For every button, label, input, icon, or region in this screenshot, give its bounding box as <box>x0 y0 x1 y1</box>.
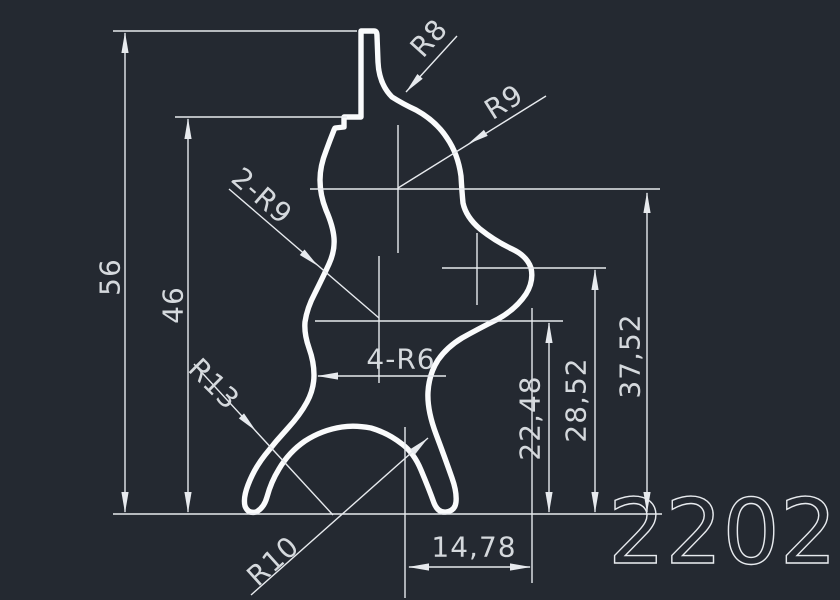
arrowhead <box>317 372 338 379</box>
extension-lines <box>113 31 662 598</box>
dimension-28-52: 28,52 <box>560 269 599 513</box>
dim-56-label: 56 <box>94 258 127 296</box>
arrowhead <box>239 413 259 433</box>
arrowhead <box>408 563 429 570</box>
dim-14-78-label: 14,78 <box>431 531 516 564</box>
dimension-37-52: 37,52 <box>614 192 651 513</box>
dimension-46: 46 <box>157 118 192 513</box>
leader-r10: R10 <box>240 435 430 595</box>
part-number-text: 2202 <box>608 480 837 585</box>
cad-viewport: 56 46 22,48 28,52 37,52 14,78 R8 <box>0 0 840 600</box>
radius-r9-label: R9 <box>479 78 530 127</box>
leader-4-r6: 4-R6 <box>317 343 446 380</box>
radius-r13-label: R13 <box>182 352 246 416</box>
dimension-22-48: 22,48 <box>514 322 553 513</box>
arrowhead <box>121 32 128 53</box>
leader-r13: R13 <box>182 352 333 515</box>
dim-28-52-label: 28,52 <box>560 357 593 442</box>
dimension-56: 56 <box>94 32 129 513</box>
arrowhead <box>591 492 598 513</box>
leader-r8: R8 <box>403 12 457 94</box>
arrowhead <box>121 492 128 513</box>
arrowhead <box>591 269 598 290</box>
dim-46-label: 46 <box>157 286 190 324</box>
arrowhead <box>545 492 552 513</box>
dim-37-52-label: 37,52 <box>614 313 647 398</box>
arrowhead <box>184 492 191 513</box>
leader-r9: R9 <box>398 78 546 188</box>
dimension-14-78: 14,78 <box>408 531 531 571</box>
radius-4-r6-label: 4-R6 <box>366 343 435 376</box>
radius-r10-label: R10 <box>240 529 305 592</box>
arrowhead <box>510 563 531 570</box>
arrowhead <box>184 118 191 139</box>
arrowhead <box>545 322 552 343</box>
dim-22-48-label: 22,48 <box>514 375 547 460</box>
radius-r8-label: R8 <box>404 12 455 63</box>
arrowhead <box>643 192 650 213</box>
leader-2-r9: 2-R9 <box>225 161 379 318</box>
part-number: 2202 <box>608 480 837 585</box>
cad-drawing: 56 46 22,48 28,52 37,52 14,78 R8 <box>0 0 840 600</box>
